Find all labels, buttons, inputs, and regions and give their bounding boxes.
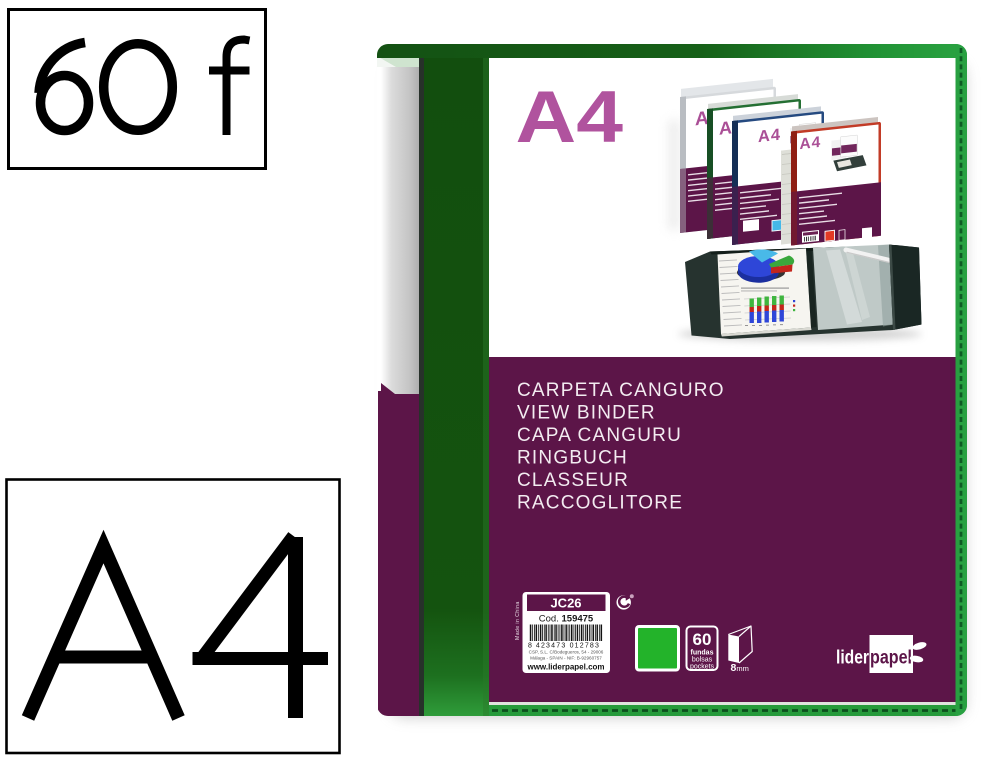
svg-text:8: 8 bbox=[528, 643, 532, 650]
svg-text:www.liderpapel.com: www.liderpapel.com bbox=[526, 663, 604, 672]
svg-text:CAPA CANGURU: CAPA CANGURU bbox=[517, 425, 682, 446]
svg-text:VIEW BINDER: VIEW BINDER bbox=[517, 403, 656, 424]
svg-text:fundas: fundas bbox=[691, 650, 714, 657]
svg-text:Cod. 159475: Cod. 159475 bbox=[539, 614, 594, 625]
svg-text:8mm: 8mm bbox=[731, 662, 749, 674]
svg-text:A4: A4 bbox=[800, 134, 822, 153]
svg-text:bolsas: bolsas bbox=[692, 657, 713, 664]
svg-text:RINGBUCH: RINGBUCH bbox=[517, 448, 628, 469]
svg-text:CSP, S.L. C/Bodegueros, 54 - 2: CSP, S.L. C/Bodegueros, 54 - 29006 bbox=[529, 650, 604, 655]
svg-text:CARPETA CANGURO: CARPETA CANGURO bbox=[517, 380, 725, 401]
svg-text:papel: papel bbox=[870, 647, 912, 669]
svg-text:CLASSEUR: CLASSEUR bbox=[517, 470, 629, 491]
svg-text:60: 60 bbox=[693, 630, 712, 649]
svg-text:423473 012783: 423473 012783 bbox=[536, 643, 600, 650]
svg-text:Made in China: Made in China bbox=[515, 601, 521, 640]
svg-text:Málaga - SPAIN - NIF: B-929607: Málaga - SPAIN - NIF: B-92960757 bbox=[530, 656, 602, 661]
svg-text:A4: A4 bbox=[758, 125, 781, 146]
svg-text:pockets: pockets bbox=[690, 664, 715, 671]
svg-text:JC26: JC26 bbox=[550, 596, 581, 611]
svg-text:RACCOGLITORE: RACCOGLITORE bbox=[517, 493, 683, 514]
svg-text:A4: A4 bbox=[516, 75, 624, 158]
svg-text:lider: lider bbox=[836, 647, 869, 669]
